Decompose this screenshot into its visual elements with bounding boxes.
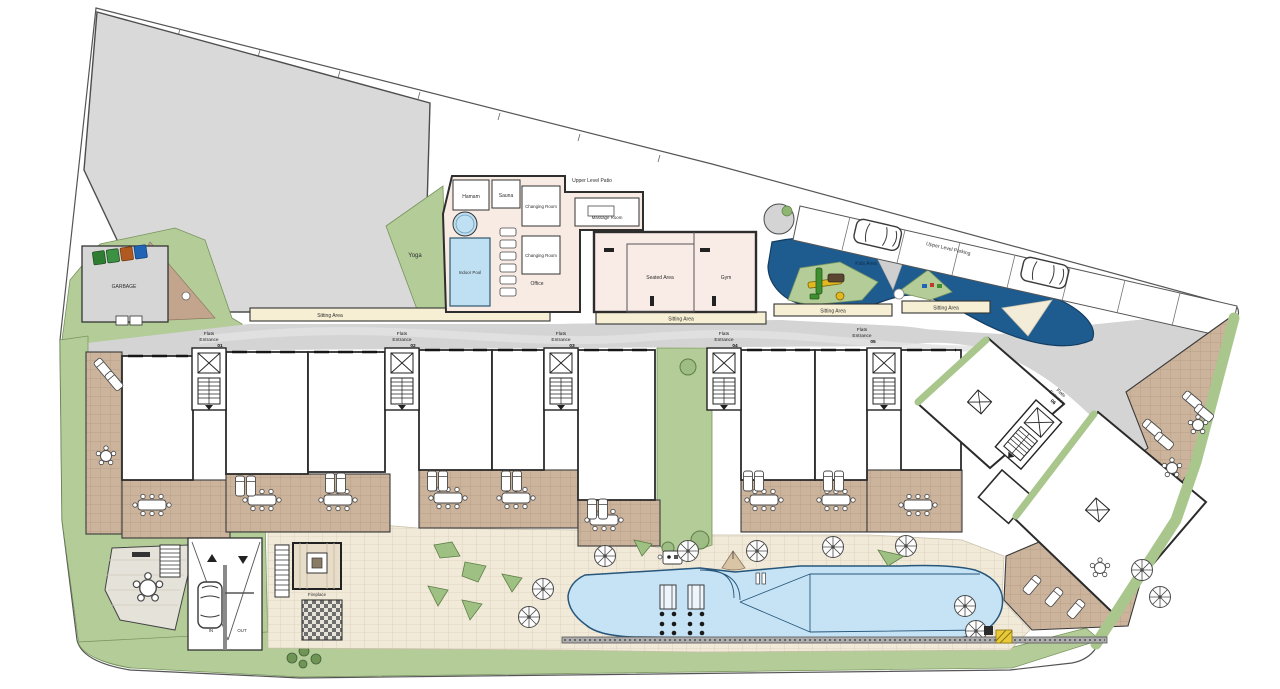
hamam-label: Hamam: [462, 194, 480, 200]
sitting-area-label: Sitting Area: [820, 309, 846, 315]
upper-level-patio-label: Upper Level Patio: [572, 178, 612, 184]
entrance-number: 05: [870, 339, 876, 345]
sitting-area-label: Sitting Area: [668, 317, 694, 323]
flat-unit: [419, 350, 492, 470]
entrance-number: 02: [410, 343, 416, 349]
checker-seating: [302, 600, 342, 640]
entrance-label-line1: Flats: [204, 331, 215, 337]
fireplace-label: Fireplace: [308, 592, 327, 597]
bench: [132, 552, 150, 557]
massage-room-label: Massage Room: [592, 215, 623, 220]
entrance-core: [544, 348, 578, 410]
indoor-pool-label: Indoor Pool: [459, 270, 481, 275]
flat-unit: [741, 350, 815, 480]
entrance-label-line2: Entrance: [551, 337, 571, 343]
site-plan-drawing: GARBAGE Yoga: [0, 0, 1280, 689]
flat-unit: [492, 350, 544, 470]
stairs: [275, 545, 289, 597]
flat-unit: [578, 350, 655, 500]
entrance-label-line1: Flats: [719, 331, 730, 337]
sauna-label: Sauna: [499, 193, 514, 199]
sitting-area-label: Sitting Area: [933, 306, 959, 312]
office-label: Office: [531, 281, 544, 287]
tree: [782, 206, 792, 216]
site-plan-canvas: GARBAGE Yoga: [0, 0, 1280, 689]
stairs: [160, 545, 180, 577]
flat-unit: [815, 350, 867, 480]
outdoor-pool: [568, 566, 1003, 641]
seated-area-label: Seated Area: [646, 275, 674, 281]
sitting-area-label: Sitting Area: [317, 313, 343, 319]
yoga-label: Yoga: [408, 253, 422, 259]
kids-area-label: Kids Area: [855, 261, 877, 267]
entrance-label-line2: Entrance: [392, 337, 412, 343]
garbage-label: GARBAGE: [112, 284, 137, 290]
flat-unit: [308, 352, 385, 472]
gym-building: Seated Area Gym: [594, 232, 756, 312]
entrance-core: [192, 348, 226, 410]
gym-label: Gym: [721, 275, 732, 281]
entrance-label-line1: Flats: [556, 331, 567, 337]
entrance-core: [867, 348, 901, 410]
flat-unit: [226, 352, 308, 474]
entrance-label-line2: Entrance: [199, 337, 219, 343]
garbage-gate: [130, 316, 142, 325]
entrance-label-line2: Entrance: [852, 333, 872, 339]
flat-unit: [122, 356, 193, 480]
parking-ramp: IN OUT: [188, 538, 262, 650]
changing-room-label: Changing Room: [525, 204, 557, 209]
pool-fence: [562, 637, 1107, 643]
garbage-gate: [116, 316, 128, 325]
entrance-number: 03: [569, 343, 575, 349]
entrance-core: [707, 348, 741, 410]
changing-room-label: Changing Room: [525, 253, 557, 258]
ramp-in-label: IN: [209, 628, 213, 633]
ramp-out-label: OUT: [237, 628, 247, 633]
entrance-label-line2: Entrance: [714, 337, 734, 343]
kids-dot: [894, 289, 904, 299]
jacuzzi: [453, 212, 477, 236]
entrance-number: 04: [732, 343, 738, 349]
entrance-label-line1: Flats: [857, 327, 868, 333]
entrance-number: 01: [217, 343, 223, 349]
ramp-car: [198, 582, 222, 628]
entrance-label-line1: Flats: [397, 331, 408, 337]
garden-dot: [182, 292, 190, 300]
entrance-core: [385, 348, 419, 410]
